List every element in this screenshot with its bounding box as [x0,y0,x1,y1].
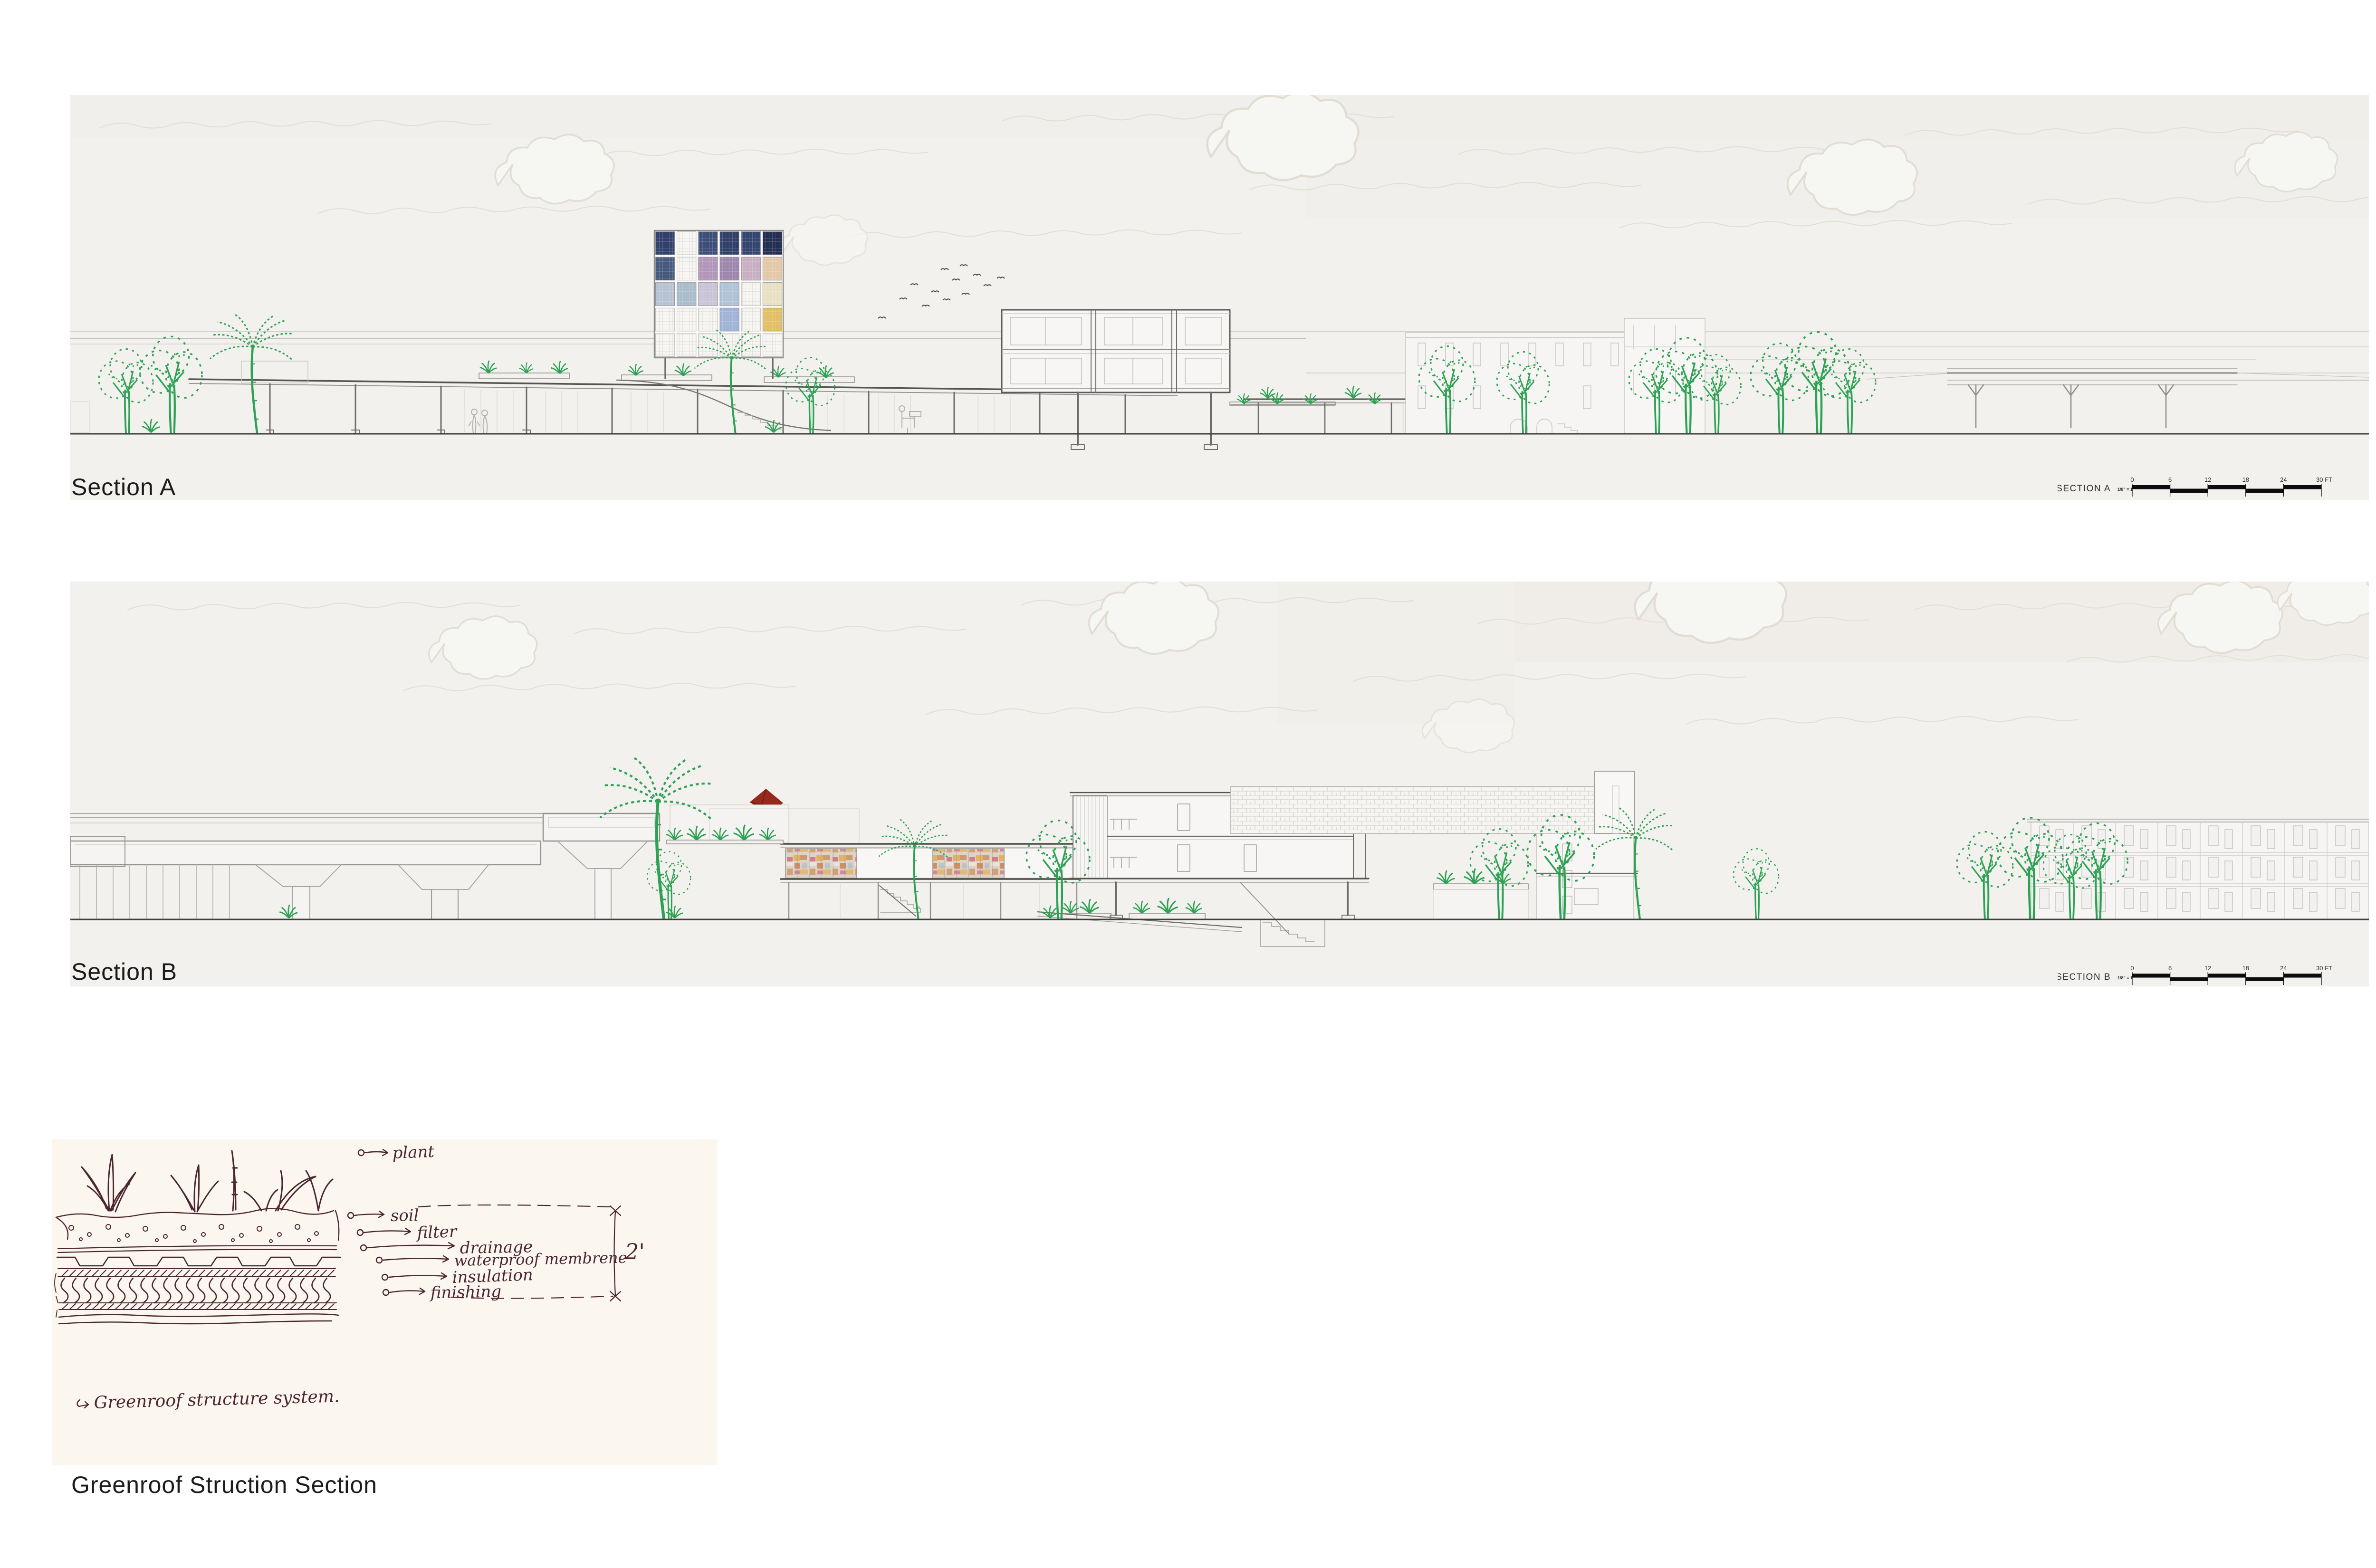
sketch-plants [82,1151,333,1212]
vegetation-b [600,758,2127,919]
note-arrow [77,1400,88,1408]
central-building [1002,310,1335,449]
scalebar-graphic: SECTION A1/8" = 1'0612182430 FT [2058,475,2371,501]
section-b-title: Section B [71,958,177,985]
sketch-membrane [62,1270,334,1276]
annotation-finishing: finishing [429,1282,501,1302]
section-a-scalebar: SECTION A1/8" = 1'0612182430 FT [2058,475,2371,501]
scalebar-tick: 30 FT [2316,476,2332,483]
section-b-scalebar: SECTION B1/8" = 1'0612182430 FT [2058,964,2371,989]
sketch-insulation [61,1278,331,1303]
scalebar-ratio: 1/8" = 1' [2117,487,2134,492]
scalebar-tick: 24 [2280,965,2287,972]
scalebar-tick: 18 [2242,476,2249,483]
annotation-membrane: waterproof membrene [454,1249,627,1270]
sky-clouds [70,95,2369,265]
sketch-filter [58,1246,336,1252]
collage-gallery [667,805,1080,919]
scalebar-tick: 6 [2168,965,2172,972]
greenroof-title: Greenroof Struction Section [71,1471,377,1499]
right-highway [1867,368,2369,428]
section-a-title: Section A [71,473,176,501]
scalebar-graphic: SECTION B1/8" = 1'0612182430 FT [2058,964,2371,989]
greenroof-sketch-paper: plant soil filter drainage waterproof me… [52,1139,718,1465]
scalebar-tick: 0 [2130,965,2134,972]
scalebar-title: SECTION A [2058,484,2111,494]
scalebar-tick: 6 [2168,476,2172,483]
sky-clouds-b [127,582,2369,753]
section-b-panel [70,582,2369,986]
annotation-plant: plant [392,1142,435,1163]
annotation-soil: soil [390,1206,419,1225]
scalebar-tick: 12 [2204,476,2211,483]
sketch-finishing [59,1314,338,1324]
scalebar-tick: 24 [2280,476,2287,483]
sketch-soil [56,1208,339,1243]
greenroof-note: Greenroof structure system. [94,1386,340,1413]
scalebar-title: SECTION B [2058,972,2111,982]
bird-icon-flock [878,265,1005,318]
annotation-filter: filter [415,1222,458,1243]
scalebar-tick: 18 [2242,965,2249,972]
dimension-label: 2' [624,1239,645,1264]
sketch-drainage [57,1257,340,1266]
elevated-highway [70,813,660,919]
sketch-membrane2 [62,1304,334,1310]
scalebar-tick: 30 FT [2316,965,2332,972]
mosaic-tower [654,230,783,379]
section-b-drawing [70,582,2369,986]
section-a-drawing [70,95,2369,500]
presentation-board: { "panels": { "section_a": { "label": "S… [0,0,2376,1568]
background-buildings [1406,318,2369,434]
figures [469,409,488,434]
section-a-panel [70,95,2369,500]
scalebar-tick: 12 [2204,965,2211,972]
greenroof-sketch: plant soil filter drainage waterproof me… [52,1139,718,1465]
market-stall-figure [899,406,921,433]
scalebar-tick: 0 [2130,476,2134,483]
scalebar-ratio: 1/8" = 1' [2117,975,2134,980]
